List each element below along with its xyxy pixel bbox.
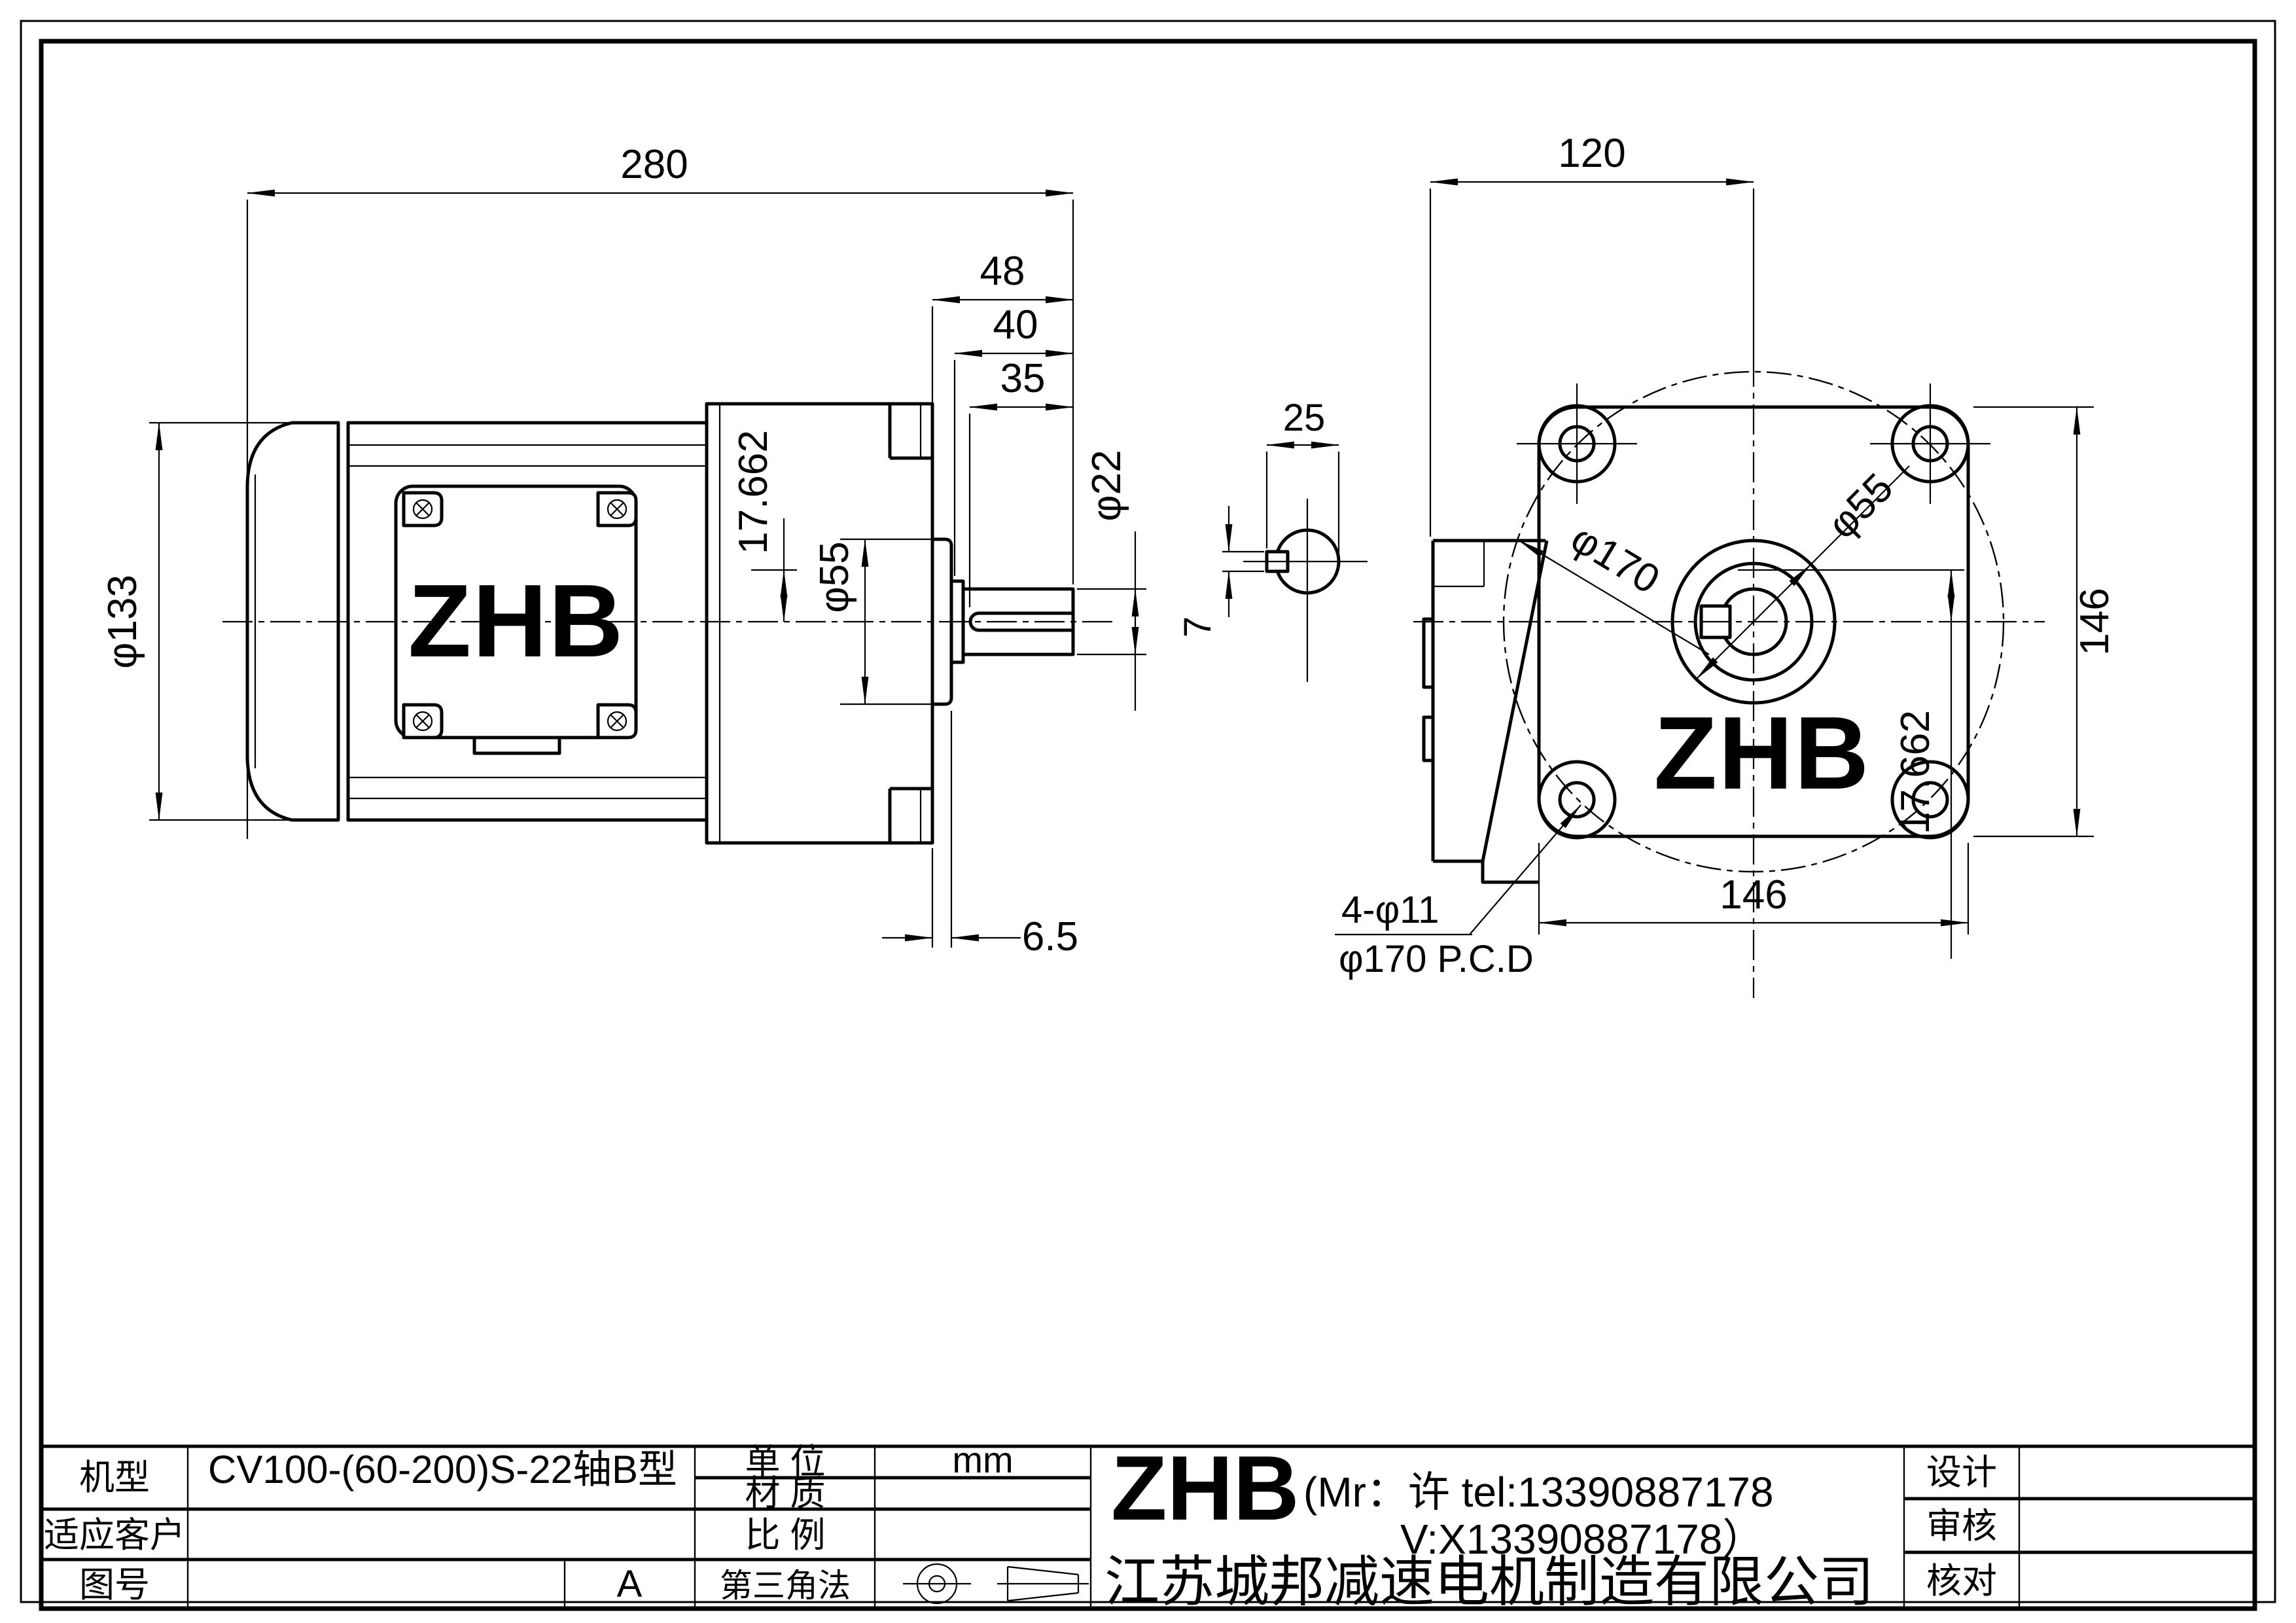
third-angle-symbol-icon (903, 1564, 1089, 1603)
dim-flange-width: 146 (1720, 872, 1787, 918)
side-view: ZHB 280 48 40 35 (100, 142, 1146, 959)
audit-label: 审核 (1926, 1507, 1997, 1546)
dim-shaft-usable: 40 (993, 302, 1038, 348)
zhb-logo-front: ZHB (1654, 696, 1871, 811)
scale-label: 比 例 (745, 1516, 825, 1555)
dim-overall-length: 280 (620, 142, 688, 187)
dim-plate-offset: 6.5 (1022, 914, 1078, 959)
terminal-box-profile (1424, 541, 1547, 882)
customer-label: 适应客户 (44, 1516, 185, 1555)
dim-key-length: 35 (1000, 356, 1046, 401)
company-name: 江苏城邦减速电机制造有限公司 (1104, 1551, 1874, 1613)
dim-spigot-dia-side: φ55 (812, 541, 857, 613)
dim-key-height-side: 17.662 (731, 430, 776, 554)
pcd-label: φ170 P.C.D (1339, 938, 1534, 980)
dim-key-height-front: 17.662 (1893, 710, 1938, 834)
revision-value: A (617, 1563, 643, 1605)
design-label: 设计 (1926, 1453, 1997, 1492)
company-contact-1: (Mr：许 tel:13390887178 (1303, 1469, 1774, 1516)
front-view-dimensions: 120 146 146 17.662 φ55 φ170 (1335, 131, 2117, 980)
dim-box-to-axis: 120 (1558, 131, 1625, 176)
dim-motor-dia: φ133 (100, 575, 145, 669)
model-label: 机型 (79, 1458, 150, 1497)
title-block: 机型 CV100-(60-200)S-22轴B型 适应客户 图号 A 单 位 m… (41, 1436, 2255, 1613)
key-section-detail: 25 7 (1176, 397, 1368, 682)
dim-flange-height: 146 (2072, 588, 2117, 655)
holes-label: 4-φ11 (1341, 889, 1439, 931)
dim-spigot-dia-front: φ55 (1820, 465, 1902, 548)
company-brand: ZHB (1111, 1436, 1299, 1539)
unit-value: mm (952, 1439, 1013, 1480)
terminal-box: ZHB (396, 486, 636, 753)
model-value: CV100-(60-200)S-22轴B型 (208, 1448, 677, 1491)
dim-bolt-circle: φ170 (1563, 516, 1667, 603)
dim-key-section-h: 7 (1176, 616, 1219, 637)
front-view: ZHB 25 7 120 (1176, 131, 2117, 998)
dim-key-section-w: 25 (1283, 397, 1326, 439)
projection-label: 第三角法 (720, 1567, 851, 1604)
drawing-no-label: 图号 (79, 1565, 150, 1605)
dim-shaft-total: 48 (980, 249, 1025, 294)
material-label: 材 质 (745, 1474, 825, 1513)
check-label: 核对 (1926, 1561, 1997, 1601)
engineering-drawing-sheet: ZHB 280 48 40 35 (0, 0, 2296, 1623)
dim-shaft-dia: φ22 (1084, 450, 1129, 521)
